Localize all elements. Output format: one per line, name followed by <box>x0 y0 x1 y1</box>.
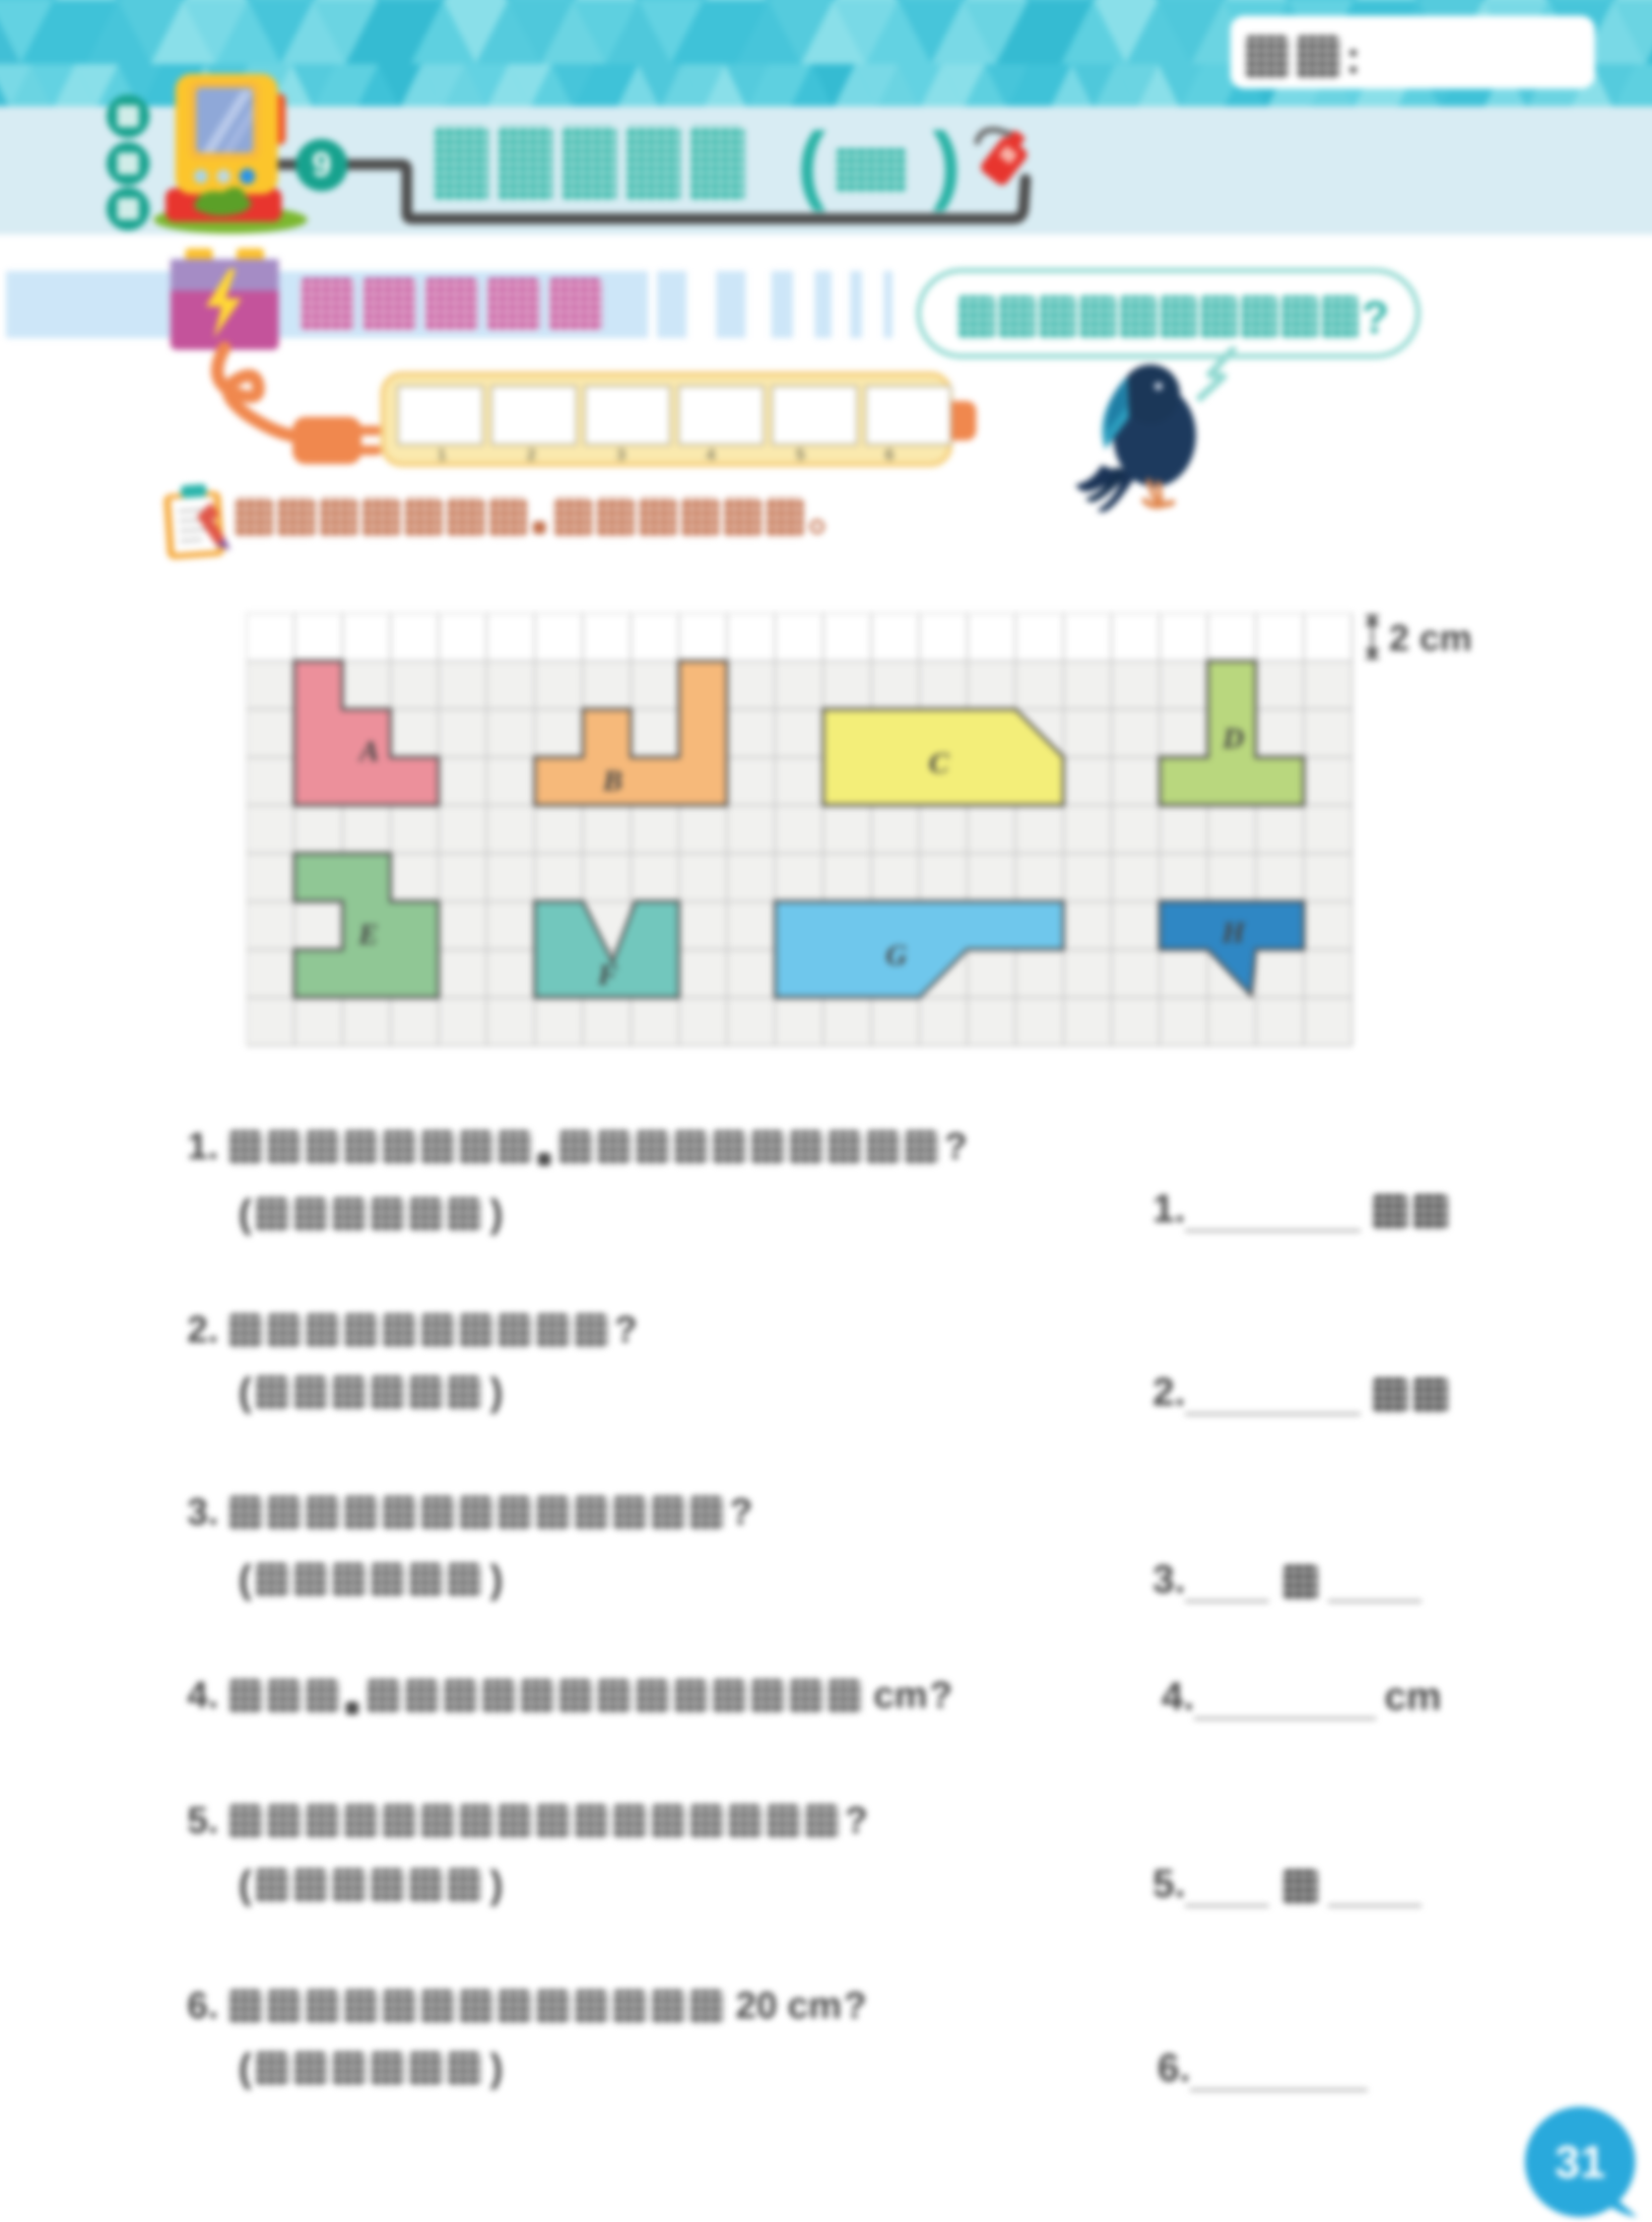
svg-text:2 cm: 2 cm <box>1389 618 1472 658</box>
svg-text:B: B <box>602 765 623 797</box>
svg-text:C: C <box>929 747 950 779</box>
svg-text:A: A <box>358 735 379 768</box>
svg-text:G: G <box>886 939 907 972</box>
svg-text:D: D <box>1222 722 1244 755</box>
svg-text:H: H <box>1221 916 1246 949</box>
svg-text:E: E <box>358 918 378 951</box>
svg-text:F: F <box>597 959 618 991</box>
